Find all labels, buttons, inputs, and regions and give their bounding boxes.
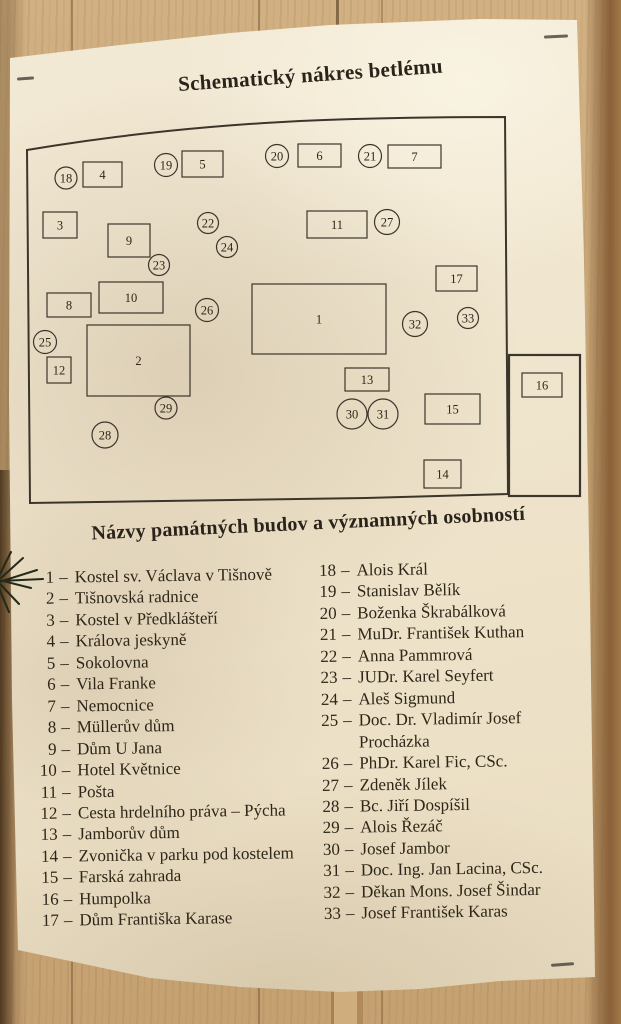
legend-item-number: 22: [315, 646, 337, 668]
diagram-circle-label-18: 18: [60, 172, 73, 186]
legend-item-number: 13: [36, 824, 58, 846]
legend-item-number: 29: [318, 817, 340, 839]
diagram-circle-label-32: 32: [409, 318, 422, 332]
legend-item-number: 33: [319, 903, 341, 925]
diagram-circle-label-30: 30: [346, 408, 359, 422]
legend-item-name: Humpolka: [79, 887, 151, 909]
legend-item-dash: –: [337, 667, 358, 689]
legend-item-dash: –: [340, 860, 361, 882]
legend-item-12: 12–Cesta hrdelního práva – Pýcha: [35, 799, 317, 824]
legend-item-number: 15: [36, 867, 58, 889]
legend-item-dash: –: [340, 817, 361, 839]
paper-sheet: Schematický nákres betlému 1234567891011…: [0, 0, 621, 1024]
diagram-rect-label-10: 10: [125, 291, 138, 305]
legend-item-number: 21: [315, 624, 337, 646]
fir-branch-icon: [0, 550, 45, 620]
legend-item-number: 27: [317, 774, 339, 796]
legend-item-number: 17: [37, 910, 59, 932]
legend-item-dash: –: [340, 881, 361, 903]
legend-item-name: JUDr. Karel Seyfert: [358, 665, 494, 688]
legend-item-dash: –: [337, 602, 358, 624]
staple-mark: [30, 959, 47, 963]
diagram-rect-label-5: 5: [199, 158, 205, 172]
legend-item-dash: –: [336, 581, 357, 603]
legend-item-name: Cesta hrdelního práva – Pýcha: [78, 799, 286, 823]
diagram-rect-label-3: 3: [57, 219, 63, 233]
legend-item-dash: –: [58, 824, 79, 846]
diagram-annex-outline: [509, 355, 580, 496]
legend-item-number: 25: [316, 710, 338, 732]
legend-item-number: 11: [35, 781, 57, 803]
legend-item-number: 5: [33, 652, 55, 674]
diagram-circle-label-25: 25: [39, 336, 52, 350]
diagram-circle-label-28: 28: [99, 429, 112, 443]
legend-item-name: PhDr. Karel Fic, CSc.: [359, 750, 508, 774]
legend-item-name: Alois Král: [356, 558, 428, 580]
legend-item-number: 32: [318, 882, 340, 904]
diagram-rect-label-7: 7: [411, 150, 417, 164]
legend-item-25: 25–Doc. Dr. Vladimír Josef Procházka: [316, 706, 600, 753]
legend-item-name: Kostel v Předklášteří: [75, 607, 218, 630]
legend-item-name: Tišnovská radnice: [75, 586, 199, 609]
diagram-circle-label-20: 20: [271, 150, 284, 164]
legend-item-number: 19: [314, 581, 336, 603]
legend-item-name: Hotel Květnice: [77, 758, 181, 781]
diagram-rect-label-2: 2: [135, 354, 141, 368]
diagram-rect-label-9: 9: [126, 234, 132, 248]
legend-item-name: Alois Řezáč: [360, 816, 443, 839]
legend-item-name: Sokolovna: [76, 651, 149, 673]
legend-item-dash: –: [54, 588, 75, 610]
legend-item-dash: –: [338, 710, 359, 732]
legend-item-number: 6: [33, 674, 55, 696]
legend-item-name: Nemocnice: [76, 694, 154, 717]
legend-item-dash: –: [57, 781, 78, 803]
legend-item-name: Doc. Dr. Vladimír Josef Procházka: [359, 706, 597, 752]
diagram-circle-label-26: 26: [201, 304, 214, 318]
legend-item-dash: –: [55, 652, 76, 674]
diagram-rect-label-8: 8: [66, 299, 72, 313]
legend-item-dash: –: [58, 845, 79, 867]
legend-item-dash: –: [56, 695, 77, 717]
legend-item-name: Dům Františka Karase: [79, 907, 232, 931]
legend-item-name: Bc. Jiří Dospíšil: [360, 794, 470, 817]
diagram-circle-label-24: 24: [221, 241, 234, 255]
legend-item-number: 31: [318, 860, 340, 882]
legend-item-dash: –: [339, 774, 360, 796]
legend-item-number: 24: [316, 688, 338, 710]
legend-item-number: 30: [318, 839, 340, 861]
legend-item-name: Děkan Mons. Josef Šindar: [361, 879, 541, 903]
diagram-rect-label-12: 12: [53, 364, 66, 378]
legend-item-1: 1–Kostel sv. Václava v Tišnově: [32, 563, 314, 588]
legend-item-number: 20: [315, 603, 337, 625]
diagram-rect-label-15: 15: [446, 403, 459, 417]
photo-of-document: Schematický nákres betlému 1234567891011…: [0, 0, 621, 1024]
legend-item-dash: –: [55, 674, 76, 696]
diagram-circle-label-31: 31: [377, 408, 390, 422]
diagram-rect-label-4: 4: [99, 168, 106, 182]
legend-item-dash: –: [56, 738, 77, 760]
legend-item-number: 18: [314, 560, 336, 582]
legend-item-name: Farská zahrada: [79, 865, 182, 888]
legend-item-name: Králova jeskyně: [75, 629, 186, 652]
legend-item-name: Josef František Karas: [361, 901, 508, 924]
legend-item-number: 10: [35, 760, 57, 782]
legend-item-name: Zdeněk Jílek: [359, 773, 447, 796]
legend-item-dash: –: [58, 867, 79, 889]
legend-item-dash: –: [339, 753, 360, 775]
legend-item-name: Müllerův dům: [77, 715, 175, 738]
legend-item-name: Zvonička v parku pod kostelem: [78, 842, 294, 866]
legend-item-17: 17–Dům Františka Karase: [37, 906, 319, 931]
legend-item-dash: –: [56, 717, 77, 739]
legend-item-dash: –: [341, 903, 362, 925]
legend-item-dash: –: [57, 802, 78, 824]
diagram-rect-label-17: 17: [450, 272, 463, 286]
diagram-circle-label-27: 27: [381, 216, 394, 230]
legend-item-14: 14–Zvonička v parku pod kostelem: [36, 842, 318, 867]
diagram-rect-label-16: 16: [536, 379, 549, 393]
legend-item-name: Vila Franke: [76, 673, 156, 696]
legend-item-dash: –: [338, 688, 359, 710]
diagram-circle-label-23: 23: [153, 259, 166, 273]
legend-item-number: 9: [34, 738, 56, 760]
legend-item-name: Kostel sv. Václava v Tišnově: [74, 564, 272, 588]
legend-item-name: Aleš Sigmund: [358, 687, 455, 710]
legend-item-name: Josef Jambor: [360, 837, 450, 860]
legend-item-number: 8: [34, 717, 56, 739]
diagram-circle-label-33: 33: [462, 312, 475, 326]
legend-item-number: 28: [317, 796, 339, 818]
legend-item-number: 12: [35, 803, 57, 825]
legend-item-dash: –: [340, 838, 361, 860]
legend-item-dash: –: [59, 910, 80, 932]
legend-item-dash: –: [337, 624, 358, 646]
legend-item-dash: –: [337, 645, 358, 667]
diagram-rect-label-11: 11: [331, 218, 343, 232]
legend-item-dash: –: [55, 631, 76, 653]
legend-item-name: Jamborův dům: [78, 822, 180, 845]
diagram-rect-label-1: 1: [316, 313, 322, 327]
legend-item-dash: –: [54, 566, 75, 588]
legend-item-name: Anna Pammrová: [358, 644, 473, 667]
legend-item-name: MuDr. František Kuthan: [357, 621, 524, 645]
legend-item-number: 7: [34, 695, 56, 717]
diagram-circle-label-29: 29: [160, 402, 173, 416]
legend-item-name: Pošta: [77, 780, 114, 802]
legend-column-left: 1–Kostel sv. Václava v Tišnově2–Tišnovsk…: [32, 563, 319, 932]
legend-item-name: Doc. Ing. Jan Lacina, CSc.: [361, 857, 544, 881]
legend-column-right: 18–Alois Král19–Stanislav Bělík20–Boženk…: [314, 556, 602, 925]
legend-item-dash: –: [57, 759, 78, 781]
legend-item-name: Stanislav Bělík: [357, 579, 461, 602]
diagram-circle-label-21: 21: [364, 150, 377, 164]
diagram-circle-label-19: 19: [160, 159, 173, 173]
legend-item-number: 26: [317, 753, 339, 775]
legend-item-33: 33–Josef František Karas: [319, 899, 602, 924]
legend-item-dash: –: [336, 559, 357, 581]
legend-item-number: 14: [36, 846, 58, 868]
diagram-rect-label-6: 6: [316, 149, 322, 163]
legend-item-name: Boženka Škrabálková: [357, 600, 506, 624]
diagram-rect-label-13: 13: [361, 373, 374, 387]
diagram-circle-label-22: 22: [202, 217, 215, 231]
legend-item-dash: –: [55, 609, 76, 631]
legend-item-number: 23: [315, 667, 337, 689]
legend-item-dash: –: [339, 795, 360, 817]
legend-item-name: Dům U Jana: [77, 737, 162, 760]
diagram-rect-label-14: 14: [436, 468, 449, 482]
legend-item-number: 16: [36, 888, 58, 910]
legend-item-dash: –: [58, 888, 79, 910]
legend-item-number: 4: [33, 631, 55, 653]
